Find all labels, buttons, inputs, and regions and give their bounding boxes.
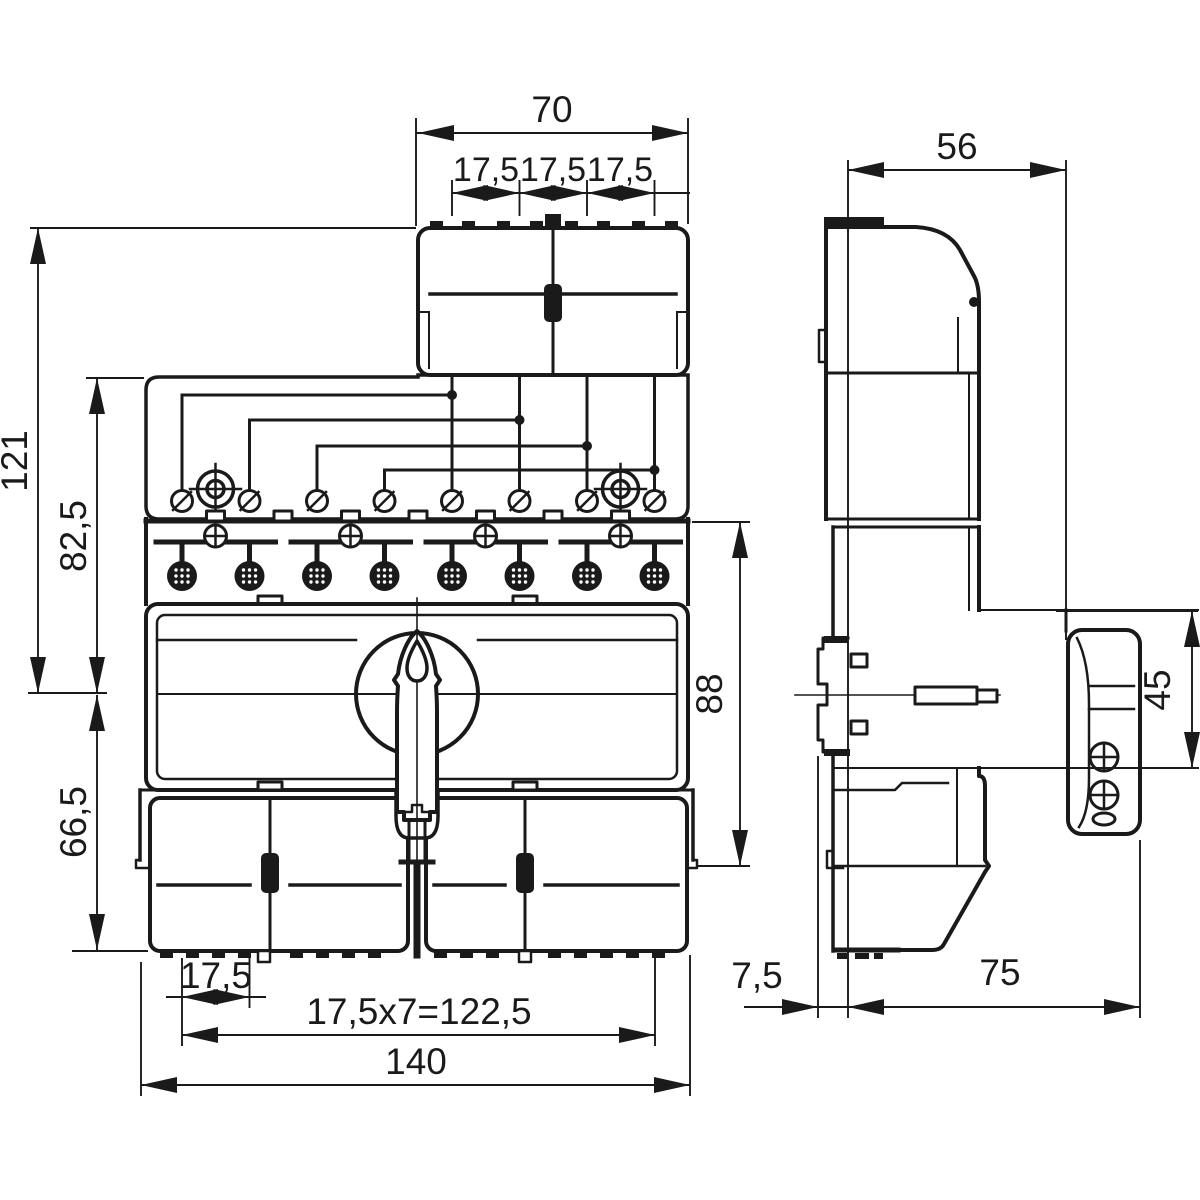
terminal-strip <box>146 511 688 604</box>
technical-drawing: 70 17,5 17,5 17,5 121 <box>0 0 1200 1200</box>
dim-label-17-5-bottom: 17,5 <box>180 955 252 996</box>
dim-label-66-5: 66,5 <box>53 786 94 858</box>
dim-label-17-5-c: 17,5 <box>587 151 653 189</box>
dim-label-122-5: 17,5x7=122,5 <box>306 991 531 1032</box>
dim-label-140: 140 <box>385 1041 447 1082</box>
top-module <box>418 228 688 375</box>
knob-screw-icon <box>1090 781 1118 809</box>
dim-label-75: 75 <box>979 952 1020 993</box>
technical-drawing-page: 70 17,5 17,5 17,5 121 <box>0 0 1200 1200</box>
door-knob <box>1068 630 1140 834</box>
dim-label-70: 70 <box>531 89 572 130</box>
dim-front-height-upper: 82,5 <box>53 378 144 693</box>
side-lower-body <box>827 768 1198 959</box>
knob-screw-icon <box>1090 743 1118 771</box>
din-rail-clip <box>818 636 867 756</box>
lower-module-right <box>426 798 687 951</box>
terminal-heads <box>167 561 670 591</box>
dim-label-56: 56 <box>936 126 977 167</box>
dim-side-depth-body: 56 <box>848 126 1066 1018</box>
wiring-box <box>146 375 688 519</box>
top-module-teeth <box>430 214 678 228</box>
front-view <box>136 214 697 962</box>
dim-front-height-right: 88 <box>689 522 750 866</box>
side-view <box>795 217 1198 959</box>
dim-front-height-lower: 66,5 <box>53 695 148 951</box>
dim-front-module-pitches: 17,5 17,5 17,5 <box>452 151 690 216</box>
dim-front-bottom-span: 17,5x7=122,5 <box>182 958 655 1046</box>
dim-label-121: 121 <box>0 430 35 492</box>
dim-label-7-5: 7,5 <box>731 955 782 996</box>
clamp-bars <box>156 542 681 560</box>
dim-label-17-5-a: 17,5 <box>453 151 519 189</box>
dim-label-17-5-b: 17,5 <box>520 151 586 189</box>
dim-label-82-5: 82,5 <box>53 500 94 572</box>
dim-label-88: 88 <box>689 673 730 714</box>
dim-label-45: 45 <box>1137 669 1178 710</box>
